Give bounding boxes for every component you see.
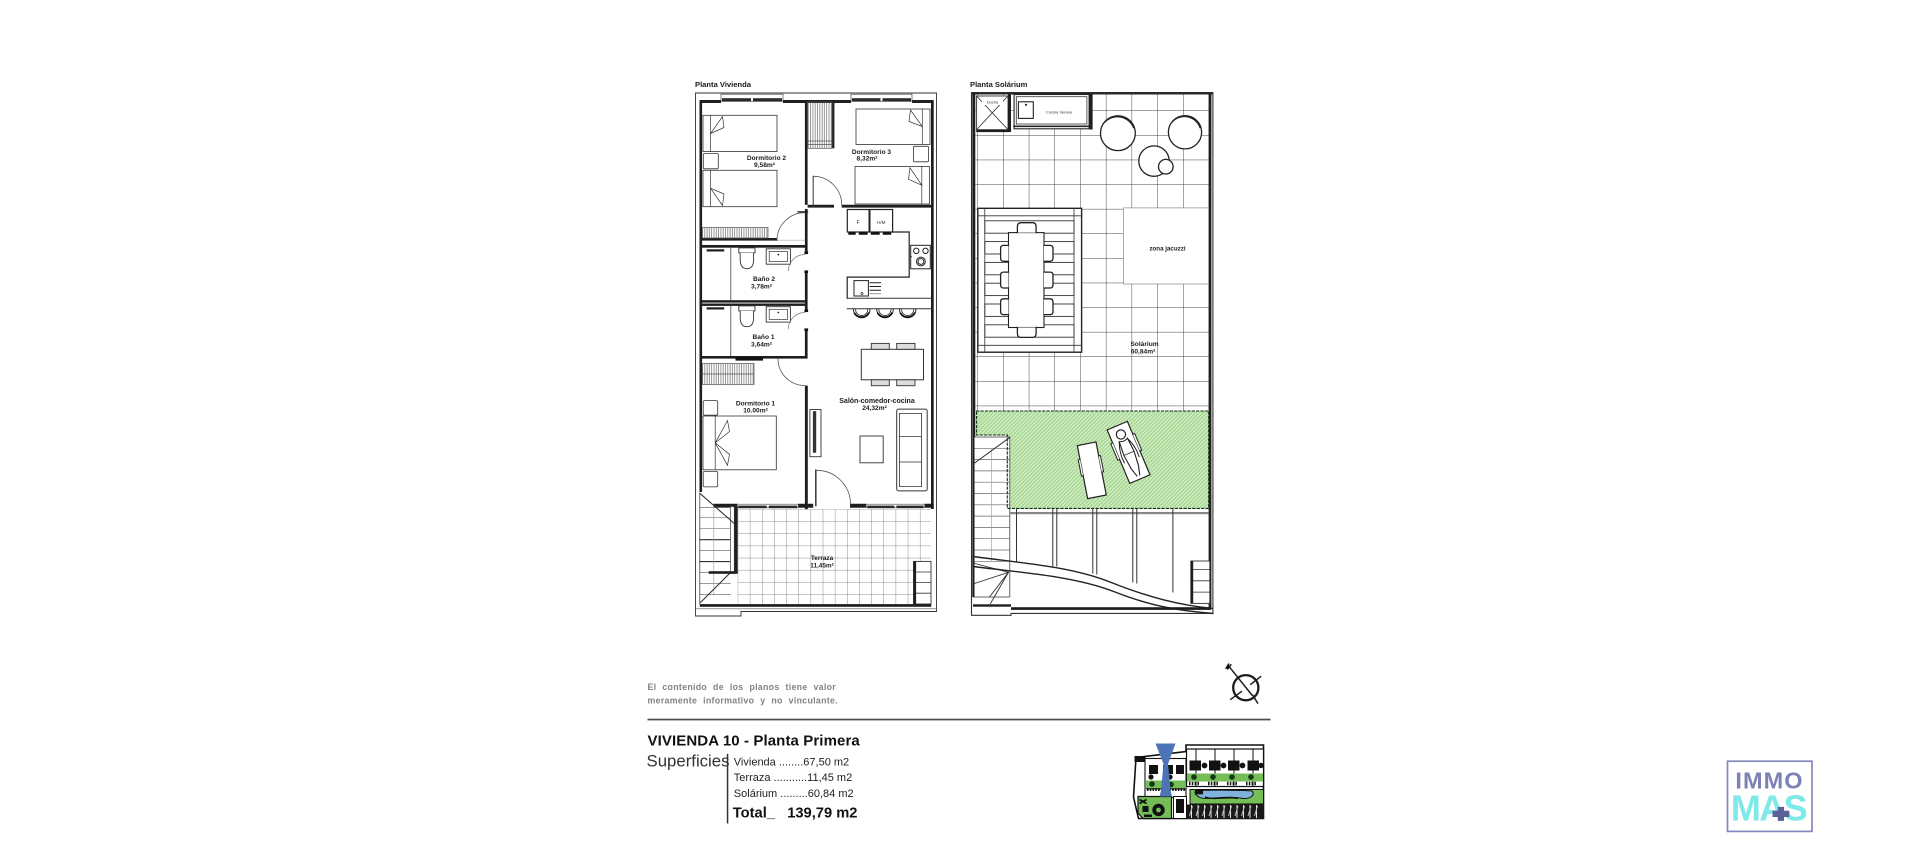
svg-text:3,64m²: 3,64m² xyxy=(751,342,773,349)
svg-text:Baño 1: Baño 1 xyxy=(753,334,775,341)
svg-text:10.00m²: 10.00m² xyxy=(743,407,768,414)
svg-text:Planta Solárium: Planta Solárium xyxy=(970,80,1028,89)
svg-text:Terraza: Terraza xyxy=(811,555,834,562)
svg-text:Solárium .........60,84 m2: Solárium .........60,84 m2 xyxy=(734,788,854,800)
svg-text:Superficies: Superficies xyxy=(647,752,730,771)
svg-text:Vivienda ........67,50 m2: Vivienda ........67,50 m2 xyxy=(734,757,849,769)
svg-text:Planta Vivienda: Planta Vivienda xyxy=(695,80,752,89)
svg-text:Ducha: Ducha xyxy=(987,99,999,104)
svg-text:60,84m²: 60,84m² xyxy=(1131,349,1156,356)
svg-text:8,32m²: 8,32m² xyxy=(857,156,879,163)
svg-text:Cocina Verano: Cocina Verano xyxy=(1046,110,1073,115)
svg-text:El contenido de los planos tie: El contenido de los planos tiene valor xyxy=(648,682,837,692)
svg-text:3,78m²: 3,78m² xyxy=(751,284,773,291)
svg-text:Salón-comedor-cocina: Salón-comedor-cocina xyxy=(839,398,915,405)
svg-text:zona jacuzzi: zona jacuzzi xyxy=(1149,246,1185,253)
svg-text:F: F xyxy=(857,220,860,226)
svg-text:Dormitorio 1: Dormitorio 1 xyxy=(736,400,776,407)
svg-text:Solárium: Solárium xyxy=(1130,341,1158,348)
svg-text:9,58m²: 9,58m² xyxy=(754,162,776,169)
svg-text:meramente informativo y no vin: meramente informativo y no vinculante. xyxy=(648,696,838,706)
svg-text:Baño 2: Baño 2 xyxy=(753,276,775,283)
svg-text:Terraza ...........11,45 m2: Terraza ...........11,45 m2 xyxy=(734,772,852,784)
svg-text:Dormitorio 2: Dormitorio 2 xyxy=(747,155,787,162)
svg-text:MAS: MAS xyxy=(1731,788,1807,829)
svg-text:11,45m²: 11,45m² xyxy=(810,563,833,570)
svg-text:H/M: H/M xyxy=(877,220,886,225)
svg-text:VIVIENDA 10 - Planta Primera: VIVIENDA 10 - Planta Primera xyxy=(648,733,861,750)
svg-text:Total_ 139,79 m2: Total_ 139,79 m2 xyxy=(733,806,858,822)
svg-text:24,32m²: 24,32m² xyxy=(862,405,887,412)
